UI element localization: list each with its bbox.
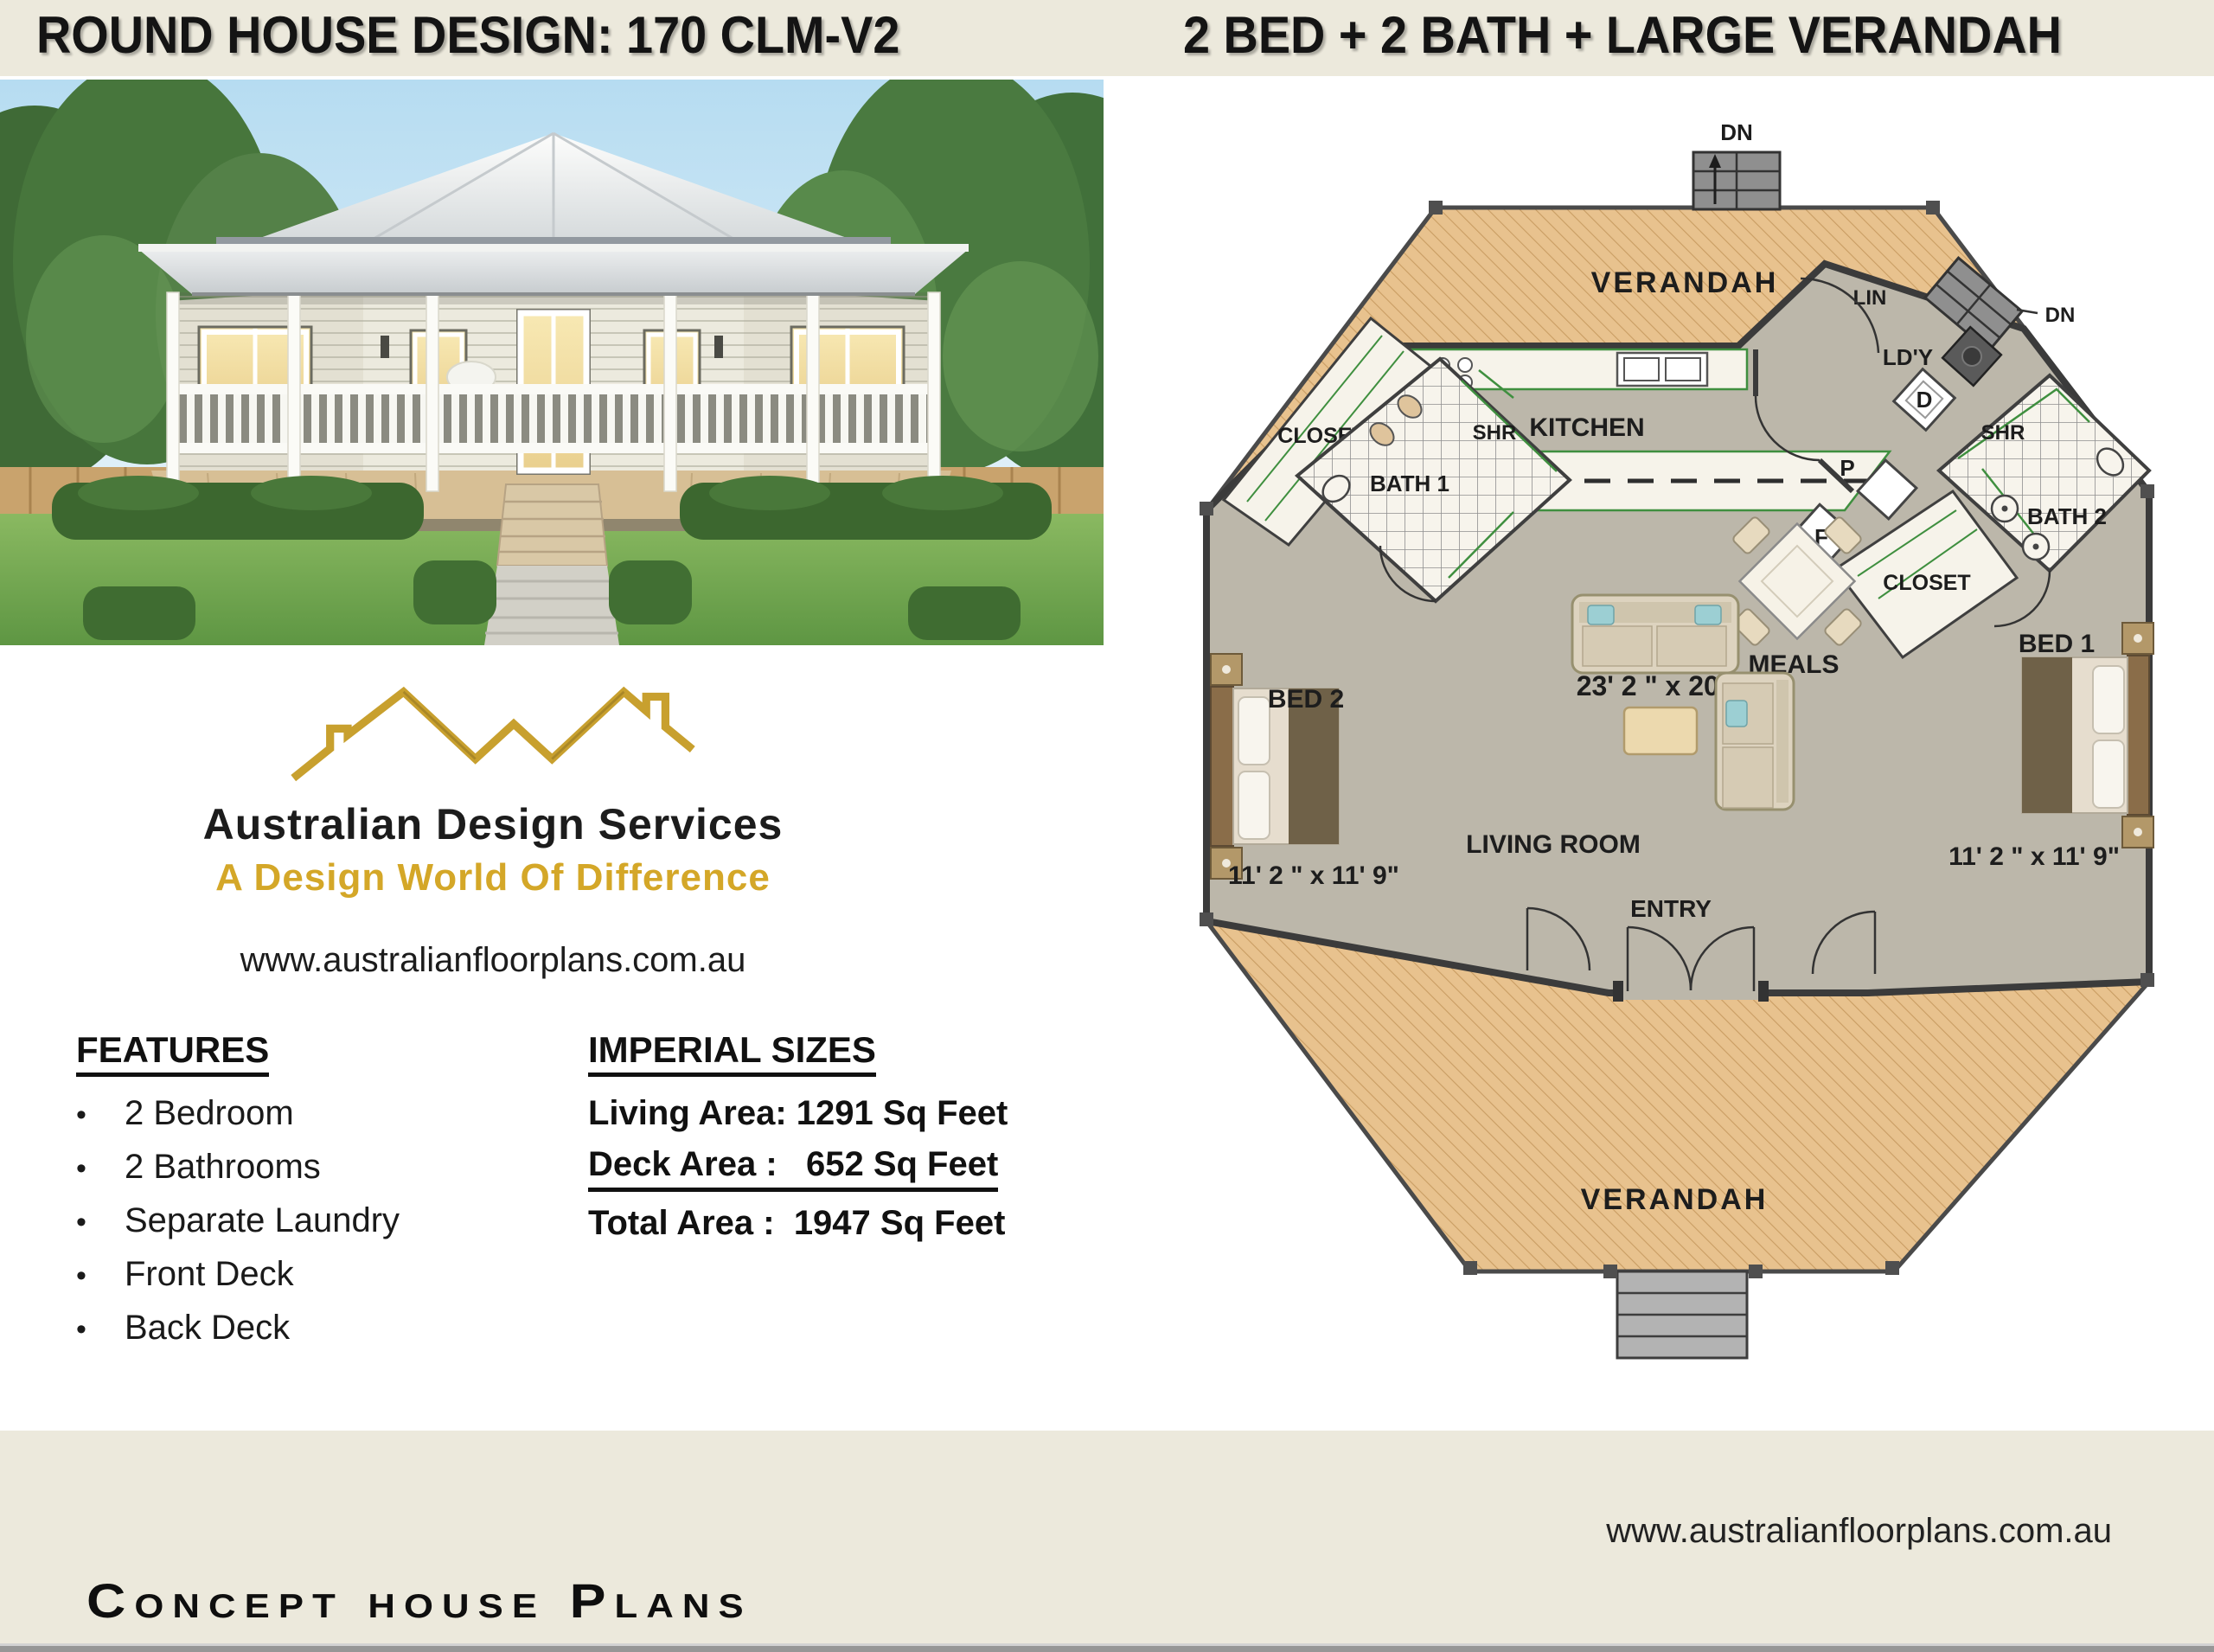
verandah-railing bbox=[167, 384, 940, 453]
plan-label-laundry: LD'Y bbox=[1883, 344, 1933, 370]
feature-label: 2 Bathrooms bbox=[125, 1148, 321, 1187]
content-sheet: Australian Design Services A Design Worl… bbox=[0, 76, 2214, 1431]
plan-label-dryer: D bbox=[1916, 387, 1933, 413]
list-item: •Back Deck bbox=[76, 1309, 400, 1348]
company-name: Australian Design Services bbox=[104, 799, 882, 849]
plan-label-bed-1: BED 1 bbox=[2019, 630, 2095, 658]
plan-label-bed-2: BED 2 bbox=[1268, 685, 1344, 714]
rear-steps bbox=[1693, 152, 1780, 209]
feature-label: 2 Bedroom bbox=[125, 1094, 294, 1133]
list-item: •Front Deck bbox=[76, 1255, 400, 1294]
plan-label-linen: LIN bbox=[1853, 286, 1887, 310]
plan-label-dn-side: DN bbox=[2045, 304, 2076, 327]
plan-label-shr-right: SHR bbox=[1981, 421, 2025, 445]
plan-label-dn-top: DN bbox=[1720, 119, 1753, 145]
company-tagline: A Design World Of Difference bbox=[104, 856, 882, 900]
plan-label-verandah-bottom: VERANDAH bbox=[1581, 1183, 1769, 1216]
plan-label-entry: ENTRY bbox=[1630, 895, 1712, 922]
page-title-summary: 2 BED + 2 BATH + LARGE VERANDAH bbox=[1183, 5, 2062, 65]
list-item: •Separate Laundry bbox=[76, 1201, 400, 1240]
floor-plan: DN C KITCHEN bbox=[1150, 95, 2214, 1375]
list-item: •2 Bedroom bbox=[76, 1094, 400, 1133]
plan-label-living-room: LIVING ROOM bbox=[1466, 830, 1641, 859]
front-steps bbox=[1617, 1271, 1747, 1358]
brochure-page: ROUND HOUSE DESIGN: 170 CLM-V2 2 BED + 2… bbox=[0, 0, 2214, 1652]
front-steps bbox=[497, 484, 607, 566]
imperial-sizes-heading: IMPERIAL SIZES bbox=[588, 1029, 876, 1077]
plan-label-shr-left: SHR bbox=[1473, 421, 1517, 445]
bottom-divider bbox=[0, 1643, 2214, 1652]
company-website: www.australianfloorplans.com.au bbox=[104, 941, 882, 980]
bullet-icon: • bbox=[76, 1152, 125, 1186]
company-logo: Australian Design Services A Design Worl… bbox=[104, 668, 882, 980]
rooflines-icon bbox=[285, 668, 701, 797]
features-section: FEATURES •2 Bedroom •2 Bathrooms •Separa… bbox=[76, 1029, 400, 1362]
plan-label-bath-2: BATH 2 bbox=[2027, 503, 2107, 529]
imperial-sizes-section: IMPERIAL SIZES Living Area: 1291 Sq Feet… bbox=[588, 1029, 1008, 1255]
features-heading: FEATURES bbox=[76, 1029, 269, 1077]
footer-website: www.australianfloorplans.com.au bbox=[1606, 1512, 2112, 1551]
feature-label: Front Deck bbox=[125, 1255, 294, 1294]
feature-label: Back Deck bbox=[125, 1309, 290, 1348]
bullet-icon: • bbox=[76, 1206, 125, 1239]
page-title-design: ROUND HOUSE DESIGN: 170 CLM-V2 bbox=[36, 5, 899, 65]
feature-label: Separate Laundry bbox=[125, 1201, 400, 1240]
deck-area-line: Deck Area : 652 Sq Feet bbox=[588, 1145, 998, 1192]
bullet-icon: • bbox=[76, 1098, 125, 1132]
plan-label-closet-right: CLOSET bbox=[1883, 571, 1970, 595]
bullet-icon: • bbox=[76, 1313, 125, 1347]
plan-label-bath-1: BATH 1 bbox=[1370, 471, 1449, 496]
wall-lamp bbox=[381, 336, 389, 358]
plan-label-bed-1-dim: 11' 2 " x 11' 9" bbox=[1948, 842, 2120, 871]
plan-label-verandah-top: VERANDAH bbox=[1591, 266, 1779, 299]
bullet-icon: • bbox=[76, 1259, 125, 1293]
list-item: •2 Bathrooms bbox=[76, 1148, 400, 1187]
footer-brand: Concept house Plans bbox=[86, 1572, 752, 1629]
plan-label-kitchen: KITCHEN bbox=[1529, 413, 1644, 442]
living-area-line: Living Area: 1291 Sq Feet bbox=[588, 1094, 1008, 1133]
wall-lamp bbox=[714, 336, 723, 358]
total-area-line: Total Area : 1947 Sq Feet bbox=[588, 1204, 1005, 1243]
plan-label-bed-2-dim: 11' 2 " x 11' 9" bbox=[1228, 861, 1399, 890]
plan-label-pantry: P bbox=[1840, 455, 1854, 481]
house-photo bbox=[0, 80, 1104, 645]
